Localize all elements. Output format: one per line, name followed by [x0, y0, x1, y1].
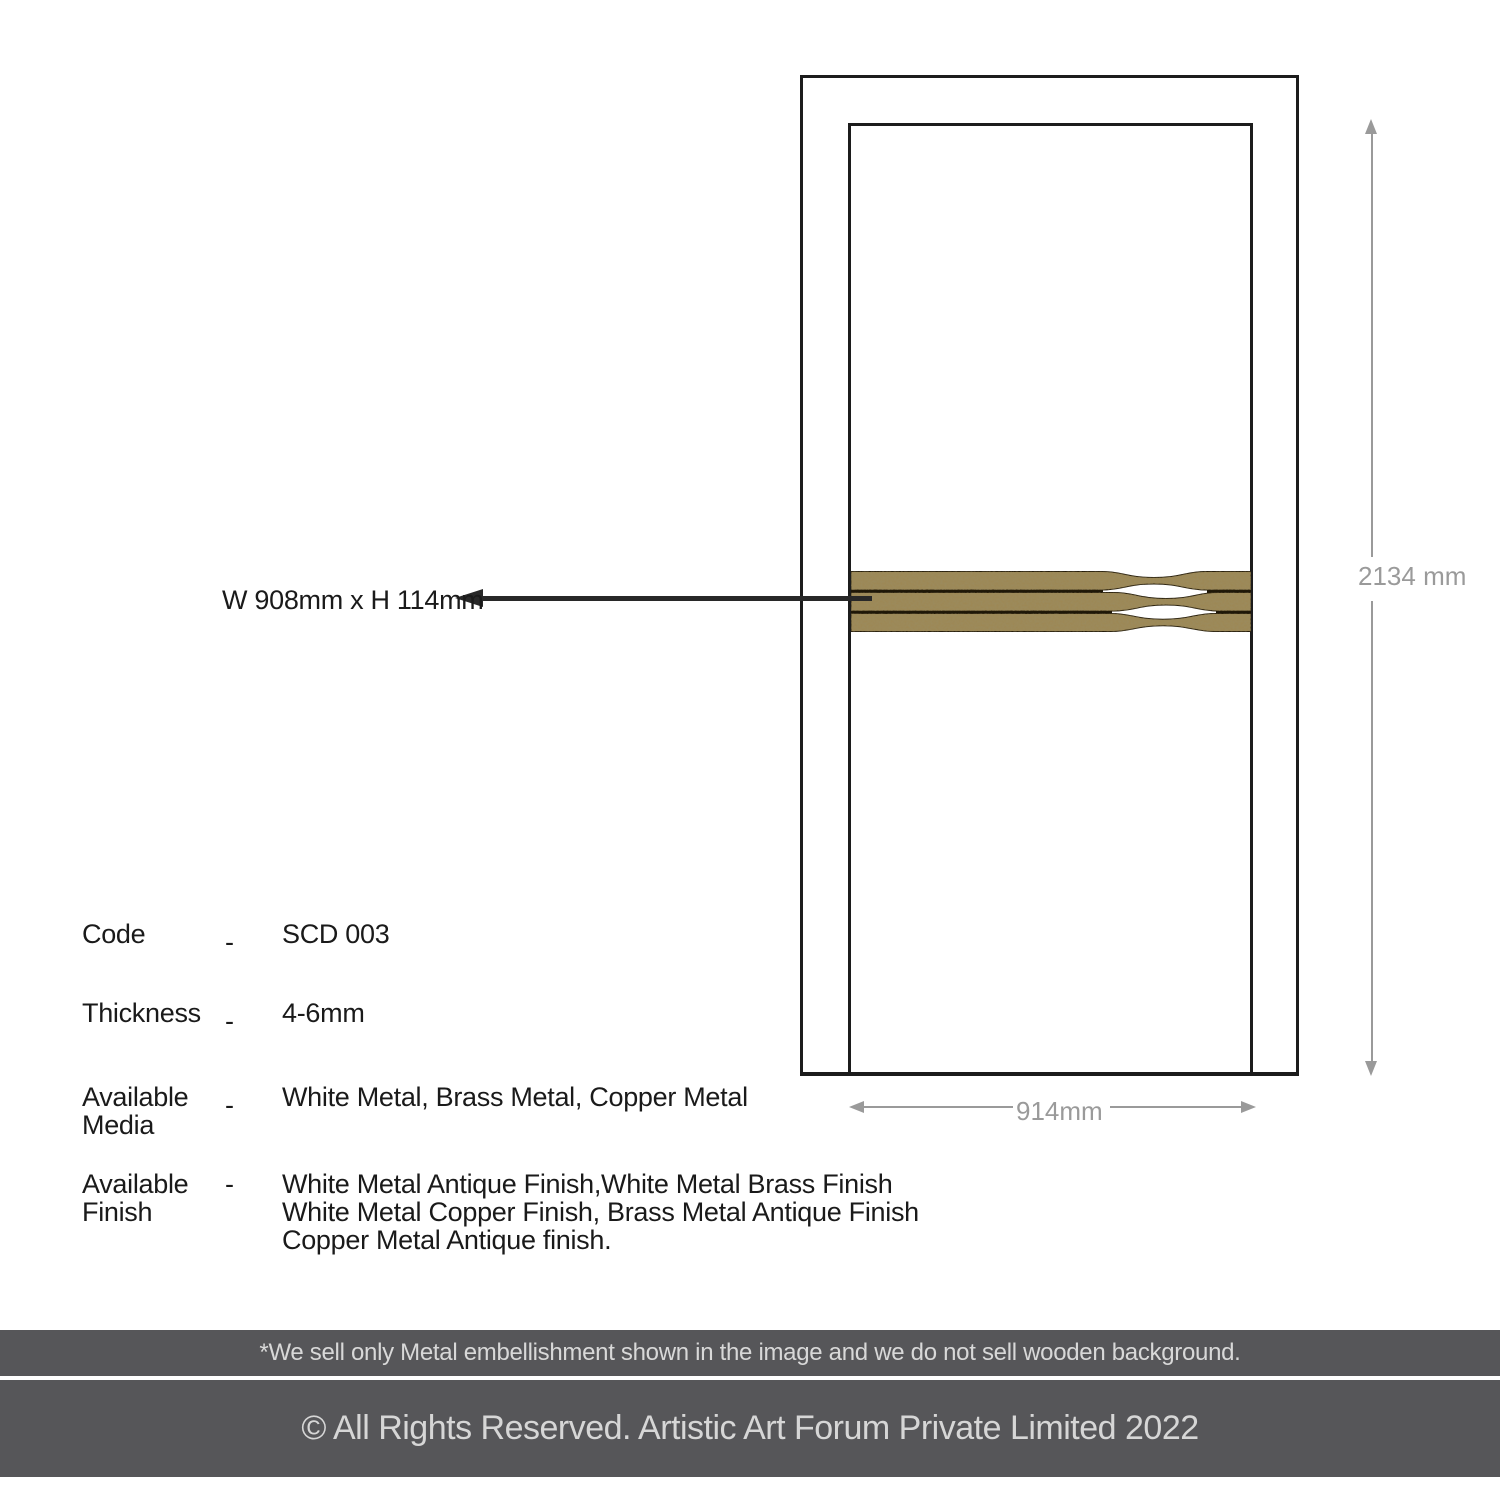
available-finish-value-line2: White Metal Copper Finish, Brass Metal A… — [282, 1198, 919, 1226]
arrow-up-icon — [1365, 119, 1377, 134]
available-finish-label-line2: Finish — [82, 1198, 188, 1226]
thickness-label: Thickness — [82, 999, 201, 1027]
thickness-value: 4-6mm — [282, 999, 365, 1027]
copyright-text: © All Rights Reserved. Artistic Art Foru… — [0, 1380, 1500, 1477]
code-value: SCD 003 — [282, 920, 389, 948]
available-media-label: Available Media — [82, 1083, 188, 1139]
width-dimension-line-right — [1110, 1106, 1243, 1108]
available-finish-label: Available Finish — [82, 1170, 188, 1226]
arrow-down-icon — [1365, 1061, 1377, 1076]
strip-texture-overlay — [851, 572, 1251, 632]
code-separator: - — [225, 928, 234, 956]
metal-embellishment-strip — [851, 571, 1251, 632]
available-finish-separator: - — [225, 1170, 234, 1198]
available-media-value: White Metal, Brass Metal, Copper Metal — [282, 1083, 748, 1111]
available-finish-value: White Metal Antique Finish,White Metal B… — [282, 1170, 919, 1254]
arrow-right-icon — [1241, 1101, 1256, 1113]
product-spec-sheet: W 908mm x H 114mm 2134 mm 914mm Code - S… — [0, 0, 1500, 1500]
door-height-label: 2134 mm — [1358, 562, 1466, 590]
copyright-bar: © All Rights Reserved. Artistic Art Foru… — [0, 1380, 1500, 1477]
available-finish-value-line1: White Metal Antique Finish,White Metal B… — [282, 1170, 919, 1198]
available-media-label-line2: Media — [82, 1111, 188, 1139]
width-dimension-line-left — [862, 1106, 1013, 1108]
height-dimension-line-upper — [1371, 133, 1373, 557]
callout-line — [481, 596, 872, 601]
available-finish-label-line1: Available — [82, 1170, 188, 1198]
available-media-separator: - — [225, 1091, 234, 1119]
strip-size-label: W 908mm x H 114mm — [222, 586, 483, 614]
door-width-label: 914mm — [1016, 1097, 1103, 1125]
available-media-label-line1: Available — [82, 1083, 188, 1111]
thickness-separator: - — [225, 1007, 234, 1035]
disclaimer-text: *We sell only Metal embellishment shown … — [0, 1330, 1500, 1376]
height-dimension-line-lower — [1371, 601, 1373, 1064]
available-finish-value-line3: Copper Metal Antique finish. — [282, 1226, 919, 1254]
disclaimer-bar: *We sell only Metal embellishment shown … — [0, 1330, 1500, 1376]
code-label: Code — [82, 920, 145, 948]
